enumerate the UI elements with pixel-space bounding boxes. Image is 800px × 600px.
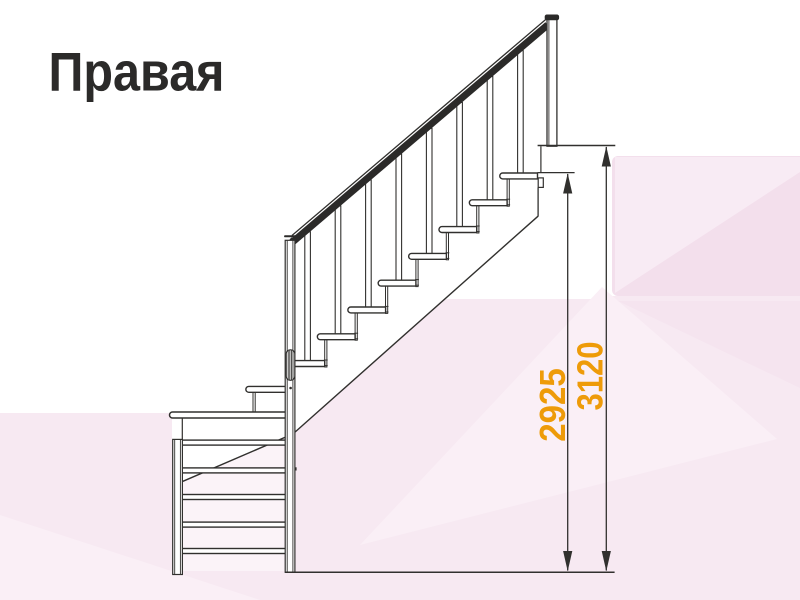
svg-text:2925: 2925 [532, 368, 573, 442]
svg-text:Правая: Правая [49, 40, 225, 102]
svg-text:3120: 3120 [569, 342, 610, 411]
